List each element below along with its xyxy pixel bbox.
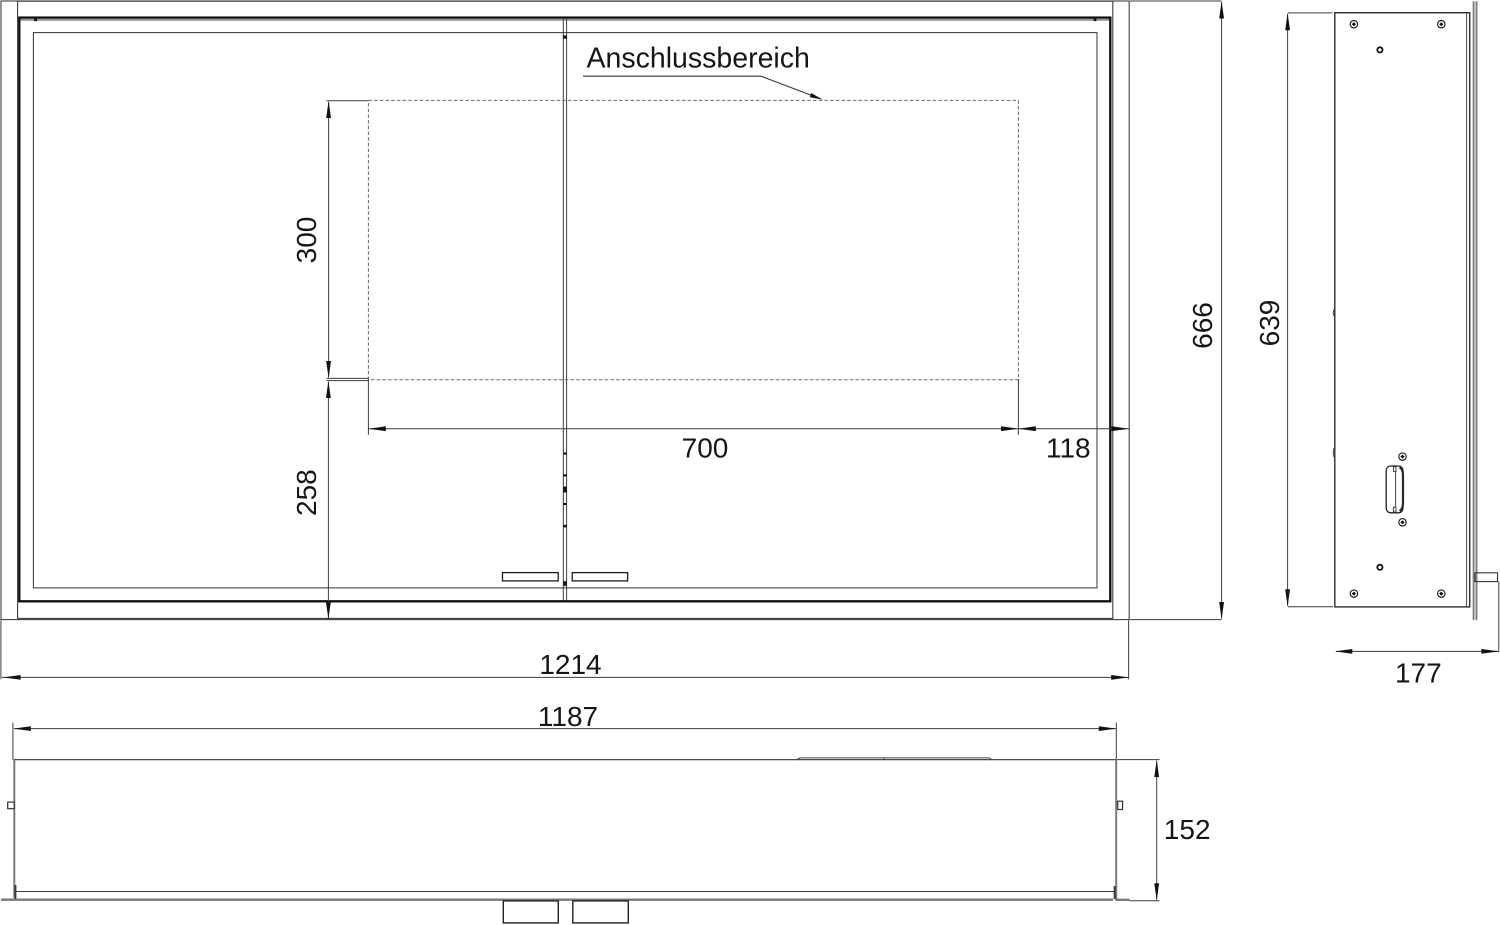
svg-text:118: 118 (1046, 433, 1091, 464)
svg-text:666: 666 (1187, 302, 1218, 349)
svg-text:258: 258 (291, 469, 322, 516)
svg-text:300: 300 (291, 217, 322, 264)
svg-text:177: 177 (1395, 658, 1442, 689)
svg-text:1187: 1187 (538, 701, 598, 732)
svg-text:Anschlussbereich: Anschlussbereich (587, 43, 810, 75)
svg-text:1214: 1214 (539, 649, 601, 680)
svg-text:639: 639 (1254, 300, 1285, 347)
svg-text:152: 152 (1164, 814, 1211, 845)
svg-text:700: 700 (682, 432, 729, 463)
